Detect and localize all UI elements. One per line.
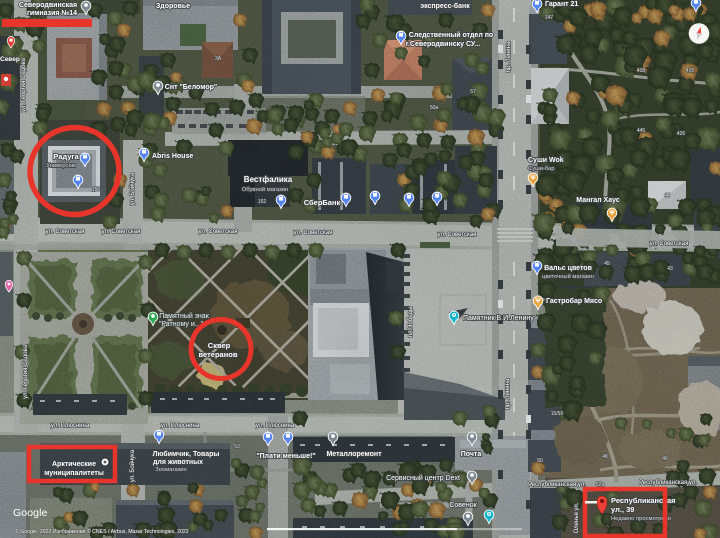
- svg-text:Abris House: Abris House: [152, 153, 193, 160]
- svg-text:46: 46: [662, 456, 668, 462]
- svg-text:ул. Советская: ул. Советская: [438, 232, 477, 238]
- svg-text:50а: 50а: [430, 105, 439, 111]
- svg-text:Google: Google: [13, 507, 48, 519]
- svg-text:пр. Ленина: пр. Ленина: [506, 41, 512, 72]
- svg-text:50: 50: [537, 458, 543, 464]
- svg-text:Сервисный центр Dext: Сервисный центр Dext: [386, 474, 460, 482]
- svg-text:Оленья ул.: Оленья ул.: [574, 502, 580, 533]
- svg-text:Следственный отдел по: Следственный отдел по: [409, 31, 493, 39]
- svg-text:гимназия №14: гимназия №14: [27, 9, 77, 17]
- svg-text:Металлоремонт: Металлоремонт: [326, 451, 382, 458]
- svg-text:147: 147: [545, 15, 554, 21]
- svg-text:415: 415: [686, 68, 695, 74]
- svg-text:ул. Советская: ул. Советская: [102, 229, 141, 235]
- svg-text:муниципалитеты: муниципалитеты: [44, 470, 104, 477]
- svg-text:48: 48: [602, 454, 608, 460]
- svg-text:ул. Плюснина: ул. Плюснина: [161, 423, 200, 429]
- svg-text:Суши Wok: Суши Wok: [528, 157, 564, 164]
- svg-text:Памятный знак: Памятный знак: [159, 312, 209, 320]
- svg-text:Почта: Почта: [461, 451, 482, 458]
- svg-text:ул. Советская: ул. Советская: [199, 229, 238, 235]
- svg-text:Вестфалика: Вестфалика: [244, 175, 293, 184]
- svg-text:445: 445: [637, 128, 646, 134]
- svg-text:ул. Бойчука: ул. Бойчука: [129, 172, 136, 205]
- svg-text:152: 152: [258, 199, 267, 205]
- svg-text:Здоровье: Здоровье: [156, 3, 190, 10]
- svg-text:ул. Советская: ул. Советская: [46, 229, 85, 235]
- svg-text:Недавно просмотрено: Недавно просмотрено: [611, 516, 671, 522]
- svg-text:Обувной магазин: Обувной магазин: [242, 186, 288, 193]
- svg-text:ул. Советская: ул. Советская: [650, 241, 689, 247]
- svg-text:ул. Георгия Седова: ул. Георгия Седова: [21, 57, 27, 112]
- svg-text:для животных: для животных: [153, 459, 203, 466]
- svg-text:43: 43: [667, 266, 673, 272]
- svg-text:57: 57: [470, 89, 476, 95]
- svg-text:Вальс цветов: Вальс цветов: [544, 265, 592, 272]
- svg-text:Сквер: Сквер: [208, 341, 231, 350]
- svg-text:ул. Плюснина: ул. Плюснина: [51, 423, 90, 429]
- svg-text:цветочный магазин: цветочный магазин: [542, 273, 594, 280]
- svg-text:Республиканская ул.: Республиканская ул.: [639, 480, 697, 486]
- svg-text:53: 53: [234, 444, 240, 450]
- svg-text:ул. Бойчука: ул. Бойчука: [129, 449, 136, 482]
- svg-text:Гарант 21: Гарант 21: [545, 1, 578, 8]
- svg-text:ул. Советская: ул. Советская: [294, 230, 333, 236]
- svg-text:15/50: 15/50: [551, 411, 564, 417]
- svg-text:Гастробар Мясо: Гастробар Мясо: [546, 297, 602, 305]
- svg-text:"Ратному и...": "Ратному и...": [159, 321, 204, 328]
- svg-text:3А: 3А: [215, 56, 222, 62]
- svg-text:ул. Плюснина: ул. Плюснина: [256, 423, 295, 429]
- svg-text:438: 438: [637, 68, 646, 74]
- svg-text:Памятник В.И.Ленину: Памятник В.И.Ленину: [463, 315, 534, 322]
- svg-text:Любимчик, Товары: Любимчик, Товары: [153, 450, 220, 458]
- svg-text:45: 45: [604, 261, 610, 267]
- svg-text:ветеранов: ветеранов: [199, 350, 238, 359]
- svg-text:426: 426: [677, 131, 686, 137]
- svg-text:"Плати меньше!": "Плати меньше!": [256, 453, 315, 460]
- svg-text:Республиканская ул.: Республиканская ул.: [528, 482, 586, 488]
- svg-text:пл.Победы: пл.Победы: [408, 307, 414, 337]
- svg-text:ул., 39: ул., 39: [611, 505, 634, 514]
- svg-text:Радуга: Радуга: [53, 152, 79, 161]
- svg-text:Универсам: Универсам: [46, 163, 75, 169]
- svg-text:Зоомагазин: Зоомагазин: [155, 467, 186, 473]
- svg-text:Арктические: Арктические: [52, 461, 96, 468]
- svg-text:СберБанк: СберБанк: [304, 198, 341, 207]
- svg-text:экспресс-банк: экспресс-банк: [420, 2, 470, 10]
- svg-text:Суши-бар: Суши-бар: [528, 166, 555, 172]
- svg-text:ул. Георгия Седова: ул. Георгия Седова: [23, 344, 29, 399]
- svg-text:Северодвинская: Северодвинская: [19, 2, 77, 9]
- svg-text:156: 156: [92, 187, 101, 193]
- svg-text:г.Северодвинску СУ...: г.Северодвинску СУ...: [406, 41, 481, 48]
- svg-text:© Google, 2022 Изображения ©: © Google, 2022 Изображения © CNES / Airb…: [15, 528, 189, 535]
- svg-text:44: 44: [664, 193, 670, 199]
- svg-text:Снт "Беломор": Снт "Беломор": [165, 84, 217, 91]
- svg-text:Мангал Хаус: Мангал Хаус: [576, 197, 620, 204]
- svg-text:Север: Север: [0, 56, 20, 63]
- svg-text:Совенок: Совенок: [449, 502, 477, 509]
- svg-text:пр. Ленина: пр. Ленина: [505, 378, 511, 409]
